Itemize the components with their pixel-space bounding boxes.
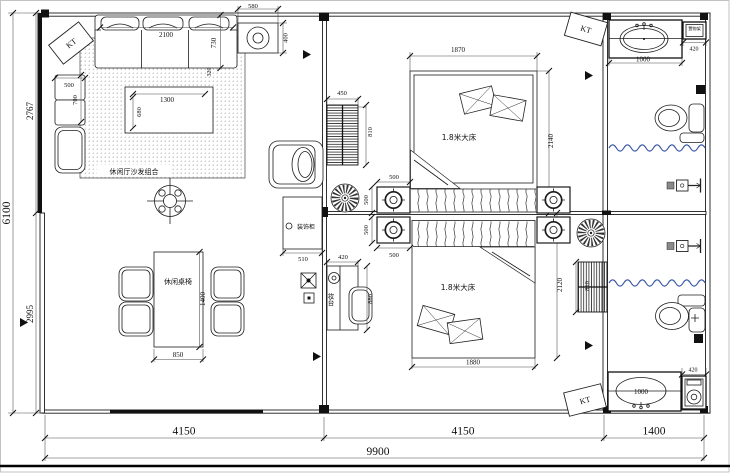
dim-dresser-width: 420 (338, 254, 348, 261)
dining-table (154, 252, 203, 347)
dim-table-depth: 1400 (199, 292, 207, 307)
nightstand (377, 217, 410, 243)
dim-height-top: 2767 (25, 102, 35, 121)
dresser-label: 妆台 (326, 292, 334, 308)
wall-left-lower (40, 213, 45, 413)
dim-height-bottom: 2995 (25, 305, 35, 324)
dim-coffee-depth: 680 (136, 107, 143, 117)
dim-sofa-depth: 730 (210, 37, 218, 48)
dim-side-depth: 700 (72, 95, 79, 105)
column (41, 10, 49, 18)
vanity-bottom: 1000 (608, 372, 681, 411)
dim-nightstand-depth: 500 (363, 225, 370, 235)
column (319, 405, 329, 413)
dining-chair (211, 302, 244, 336)
dim-nightstand-width: 500 (389, 174, 399, 181)
dresser-chair (349, 287, 372, 324)
sofa: 2100 730 320 (95, 12, 237, 77)
dim-shelf1-width: 420 (690, 47, 699, 53)
bed2-label: 1.8米大床 (441, 282, 476, 292)
nightstand (537, 217, 570, 243)
floor-drain (696, 85, 705, 94)
dim-vent-height: 400 (283, 33, 290, 43)
floor-drain (694, 334, 703, 343)
dim-shelf2-width: 420 (689, 368, 698, 374)
cabinet-label: 装饰柜 (297, 223, 315, 231)
dining-chair (211, 267, 244, 301)
bed-1: 1.8米大床 (410, 71, 537, 212)
sofa-area-label: 休闲厅沙发组合 (110, 167, 159, 176)
armchair-left (55, 127, 85, 173)
wall-solid-segment (110, 410, 263, 414)
dim-bed2-width: 1880 (466, 359, 481, 367)
dim-nightstand-width: 500 (389, 252, 399, 259)
wall-junction (602, 211, 611, 216)
coffee-table: 1300 680 (125, 87, 213, 133)
nightstand (377, 187, 410, 213)
dim-bed2-length: 2120 (556, 278, 564, 293)
exhaust-fan (577, 219, 605, 247)
dim-table-width: 850 (173, 351, 184, 359)
dim-span-living: 4150 (173, 426, 196, 438)
column (700, 13, 708, 20)
dresser: 妆台 420 880 (324, 254, 374, 333)
floor-plan-canvas: 6100 2767 2995 4150 4150 1400 9900 休闲厅沙发… (0, 0, 730, 473)
dim-radiator2-height: 810 (584, 281, 591, 291)
dim-span-bedroom: 4150 (452, 426, 475, 438)
dim-sofa-edge: 320 (207, 68, 213, 77)
exhaust-fan (331, 184, 359, 212)
dim-cabinet-width: 510 (298, 256, 308, 263)
shelf-label: 置物架 (688, 25, 701, 32)
dim-total-width: 9900 (367, 446, 390, 458)
dim-side-width: 500 (64, 82, 74, 89)
side-tables: 500 700 (52, 72, 88, 125)
bath-mat (680, 133, 704, 143)
dim-vent-width: 580 (248, 3, 258, 10)
column (603, 13, 611, 20)
lounge-chair (269, 141, 323, 188)
dim-bed1-length: 2140 (547, 134, 555, 149)
dining-label: 休闲桌椅 (164, 277, 192, 286)
floor-plan-page: 6100 2767 2995 4150 4150 1400 9900 休闲厅沙发… (0, 0, 730, 473)
dim-radiator1-width: 450 (337, 90, 347, 97)
dining-chair (119, 267, 153, 301)
bed1-label: 1.8米大床 (442, 132, 477, 142)
radiator-2: 810 (573, 259, 607, 315)
nightstand (537, 187, 570, 213)
dim-coffee-width: 1300 (160, 96, 175, 104)
dining-chair (119, 302, 153, 336)
dim-vanity1-width: 1000 (636, 56, 651, 64)
dim-dresser-depth: 880 (367, 294, 374, 304)
column (319, 13, 329, 21)
dim-vanity2-width: 1000 (634, 388, 649, 396)
bed-2: 1.8米大床 (412, 221, 535, 359)
decor-cabinet: 装饰柜 510 (280, 197, 325, 263)
dim-nightstand-depth: 500 (363, 195, 370, 205)
dim-span-bath: 1400 (643, 426, 666, 438)
dim-bed1-width: 1870 (451, 46, 466, 54)
wall-left-upper (38, 13, 43, 213)
dim-sofa-width: 2100 (159, 31, 174, 39)
dim-total-height: 6100 (1, 201, 13, 224)
dim-radiator1-height: 810 (367, 127, 374, 137)
